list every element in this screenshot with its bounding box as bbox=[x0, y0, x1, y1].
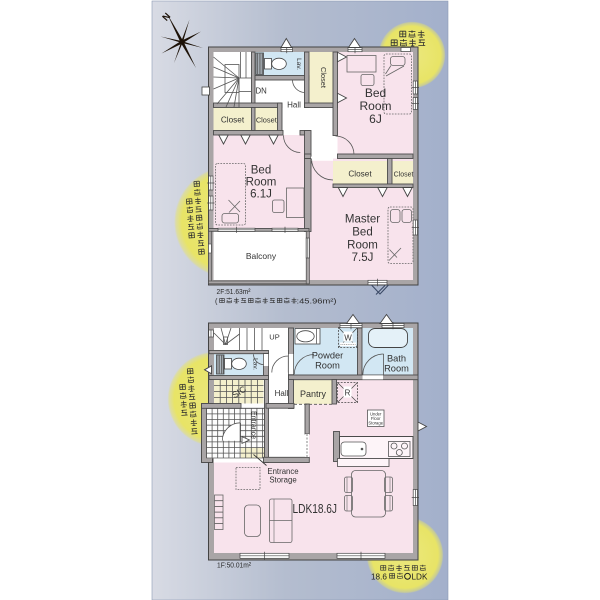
svg-text:LDK18.6J: LDK18.6J bbox=[293, 502, 338, 516]
svg-text:Pantry: Pantry bbox=[300, 389, 327, 399]
svg-text:Room: Room bbox=[384, 364, 409, 374]
svg-text:UP: UP bbox=[269, 333, 279, 342]
svg-text:Room: Room bbox=[315, 361, 340, 371]
svg-text:Balcony: Balcony bbox=[246, 251, 277, 261]
svg-text:18.6: 18.6 bbox=[371, 573, 387, 582]
svg-text:1F:50.01m²: 1F:50.01m² bbox=[217, 561, 251, 570]
svg-text:Closet: Closet bbox=[394, 172, 414, 179]
svg-text:W: W bbox=[344, 334, 352, 343]
svg-text:DN: DN bbox=[256, 87, 267, 96]
svg-text:Closet: Closet bbox=[221, 116, 245, 125]
svg-text:Hall: Hall bbox=[287, 101, 301, 110]
svg-text:Room: Room bbox=[347, 240, 378, 252]
svg-text:Hall: Hall bbox=[275, 389, 289, 398]
svg-text:LDK: LDK bbox=[412, 573, 428, 582]
svg-text:Storage: Storage bbox=[368, 421, 383, 426]
svg-text:Closet: Closet bbox=[256, 116, 277, 125]
svg-text:Bath: Bath bbox=[387, 354, 406, 364]
svg-text:Powder: Powder bbox=[312, 351, 344, 361]
svg-text::45.96m²): :45.96m²) bbox=[297, 297, 337, 306]
svg-text:Lav.: Lav. bbox=[295, 58, 302, 70]
svg-text:6J: 6J bbox=[369, 112, 382, 126]
svg-text:Closet: Closet bbox=[319, 67, 328, 88]
svg-text:Storage: Storage bbox=[269, 476, 296, 485]
svg-text:Bed: Bed bbox=[251, 165, 271, 177]
svg-text:2F:51.63m²: 2F:51.63m² bbox=[217, 287, 251, 296]
svg-text:6.1J: 6.1J bbox=[250, 189, 272, 201]
svg-text:Room: Room bbox=[246, 177, 277, 189]
svg-text:R: R bbox=[345, 389, 351, 398]
svg-text:7.5J: 7.5J bbox=[352, 252, 374, 264]
svg-text:Room: Room bbox=[359, 99, 391, 113]
svg-text:Lav.: Lav. bbox=[252, 358, 259, 370]
svg-text:Bed: Bed bbox=[352, 227, 372, 239]
svg-text:Entrance: Entrance bbox=[250, 411, 257, 439]
svg-text:Master: Master bbox=[345, 214, 380, 226]
svg-text:Bed: Bed bbox=[365, 86, 386, 100]
svg-text:Closet: Closet bbox=[348, 170, 372, 179]
